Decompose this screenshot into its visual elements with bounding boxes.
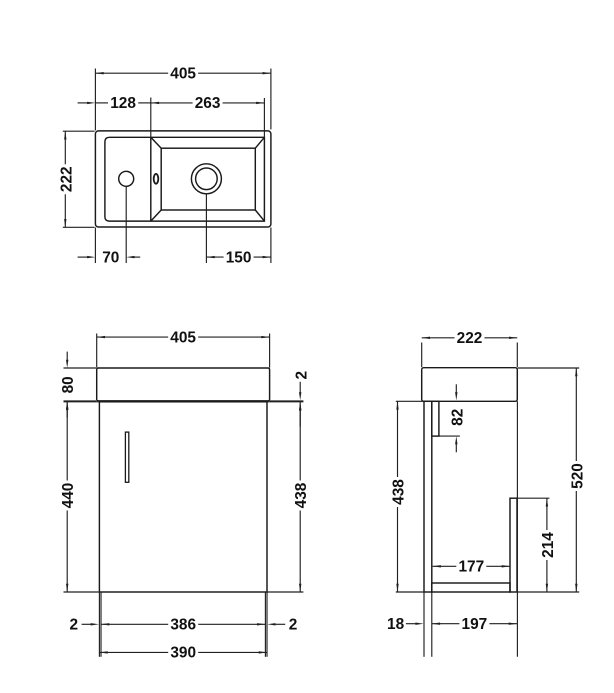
- svg-text:214: 214: [540, 532, 557, 558]
- svg-text:520: 520: [569, 463, 586, 489]
- svg-text:263: 263: [195, 95, 221, 112]
- svg-text:177: 177: [458, 559, 484, 576]
- svg-text:2: 2: [294, 371, 311, 380]
- svg-text:405: 405: [170, 66, 196, 83]
- svg-text:2: 2: [289, 617, 298, 634]
- svg-text:80: 80: [60, 376, 77, 393]
- svg-text:18: 18: [387, 616, 405, 633]
- svg-text:150: 150: [226, 249, 252, 266]
- svg-text:82: 82: [450, 409, 467, 426]
- svg-text:70: 70: [102, 249, 119, 266]
- svg-text:128: 128: [110, 95, 136, 112]
- svg-text:438: 438: [391, 479, 408, 505]
- svg-text:438: 438: [293, 482, 310, 508]
- svg-text:2: 2: [70, 617, 79, 634]
- svg-text:222: 222: [457, 330, 483, 347]
- svg-text:390: 390: [170, 645, 196, 662]
- svg-text:197: 197: [462, 616, 488, 633]
- svg-text:440: 440: [60, 483, 77, 509]
- svg-text:405: 405: [170, 329, 196, 346]
- svg-text:386: 386: [170, 617, 196, 634]
- svg-text:222: 222: [58, 166, 75, 192]
